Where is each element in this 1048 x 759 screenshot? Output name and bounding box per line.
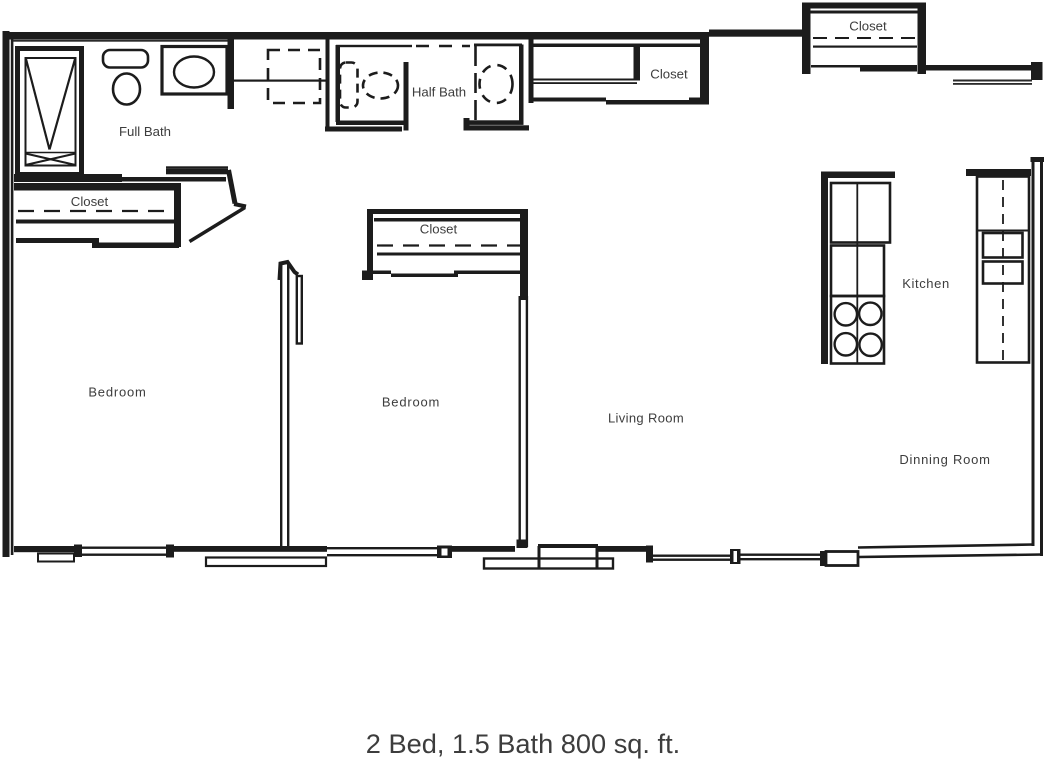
svg-text:Kitchen: Kitchen: [902, 276, 950, 291]
svg-text:Dinning Room: Dinning Room: [899, 452, 990, 467]
svg-text:Closet: Closet: [71, 194, 109, 209]
svg-text:Closet: Closet: [650, 67, 688, 82]
svg-text:Closet: Closet: [420, 222, 458, 237]
svg-text:Half Bath: Half Bath: [412, 85, 466, 100]
svg-text:Living Room: Living Room: [608, 411, 684, 426]
svg-text:2 Bed, 1.5 Bath 800 sq. ft.: 2 Bed, 1.5 Bath 800 sq. ft.: [366, 728, 680, 759]
svg-text:Bedroom: Bedroom: [88, 385, 146, 400]
svg-text:Full Bath: Full Bath: [119, 124, 171, 139]
svg-text:Closet: Closet: [849, 19, 887, 34]
svg-text:Bedroom: Bedroom: [382, 395, 440, 410]
